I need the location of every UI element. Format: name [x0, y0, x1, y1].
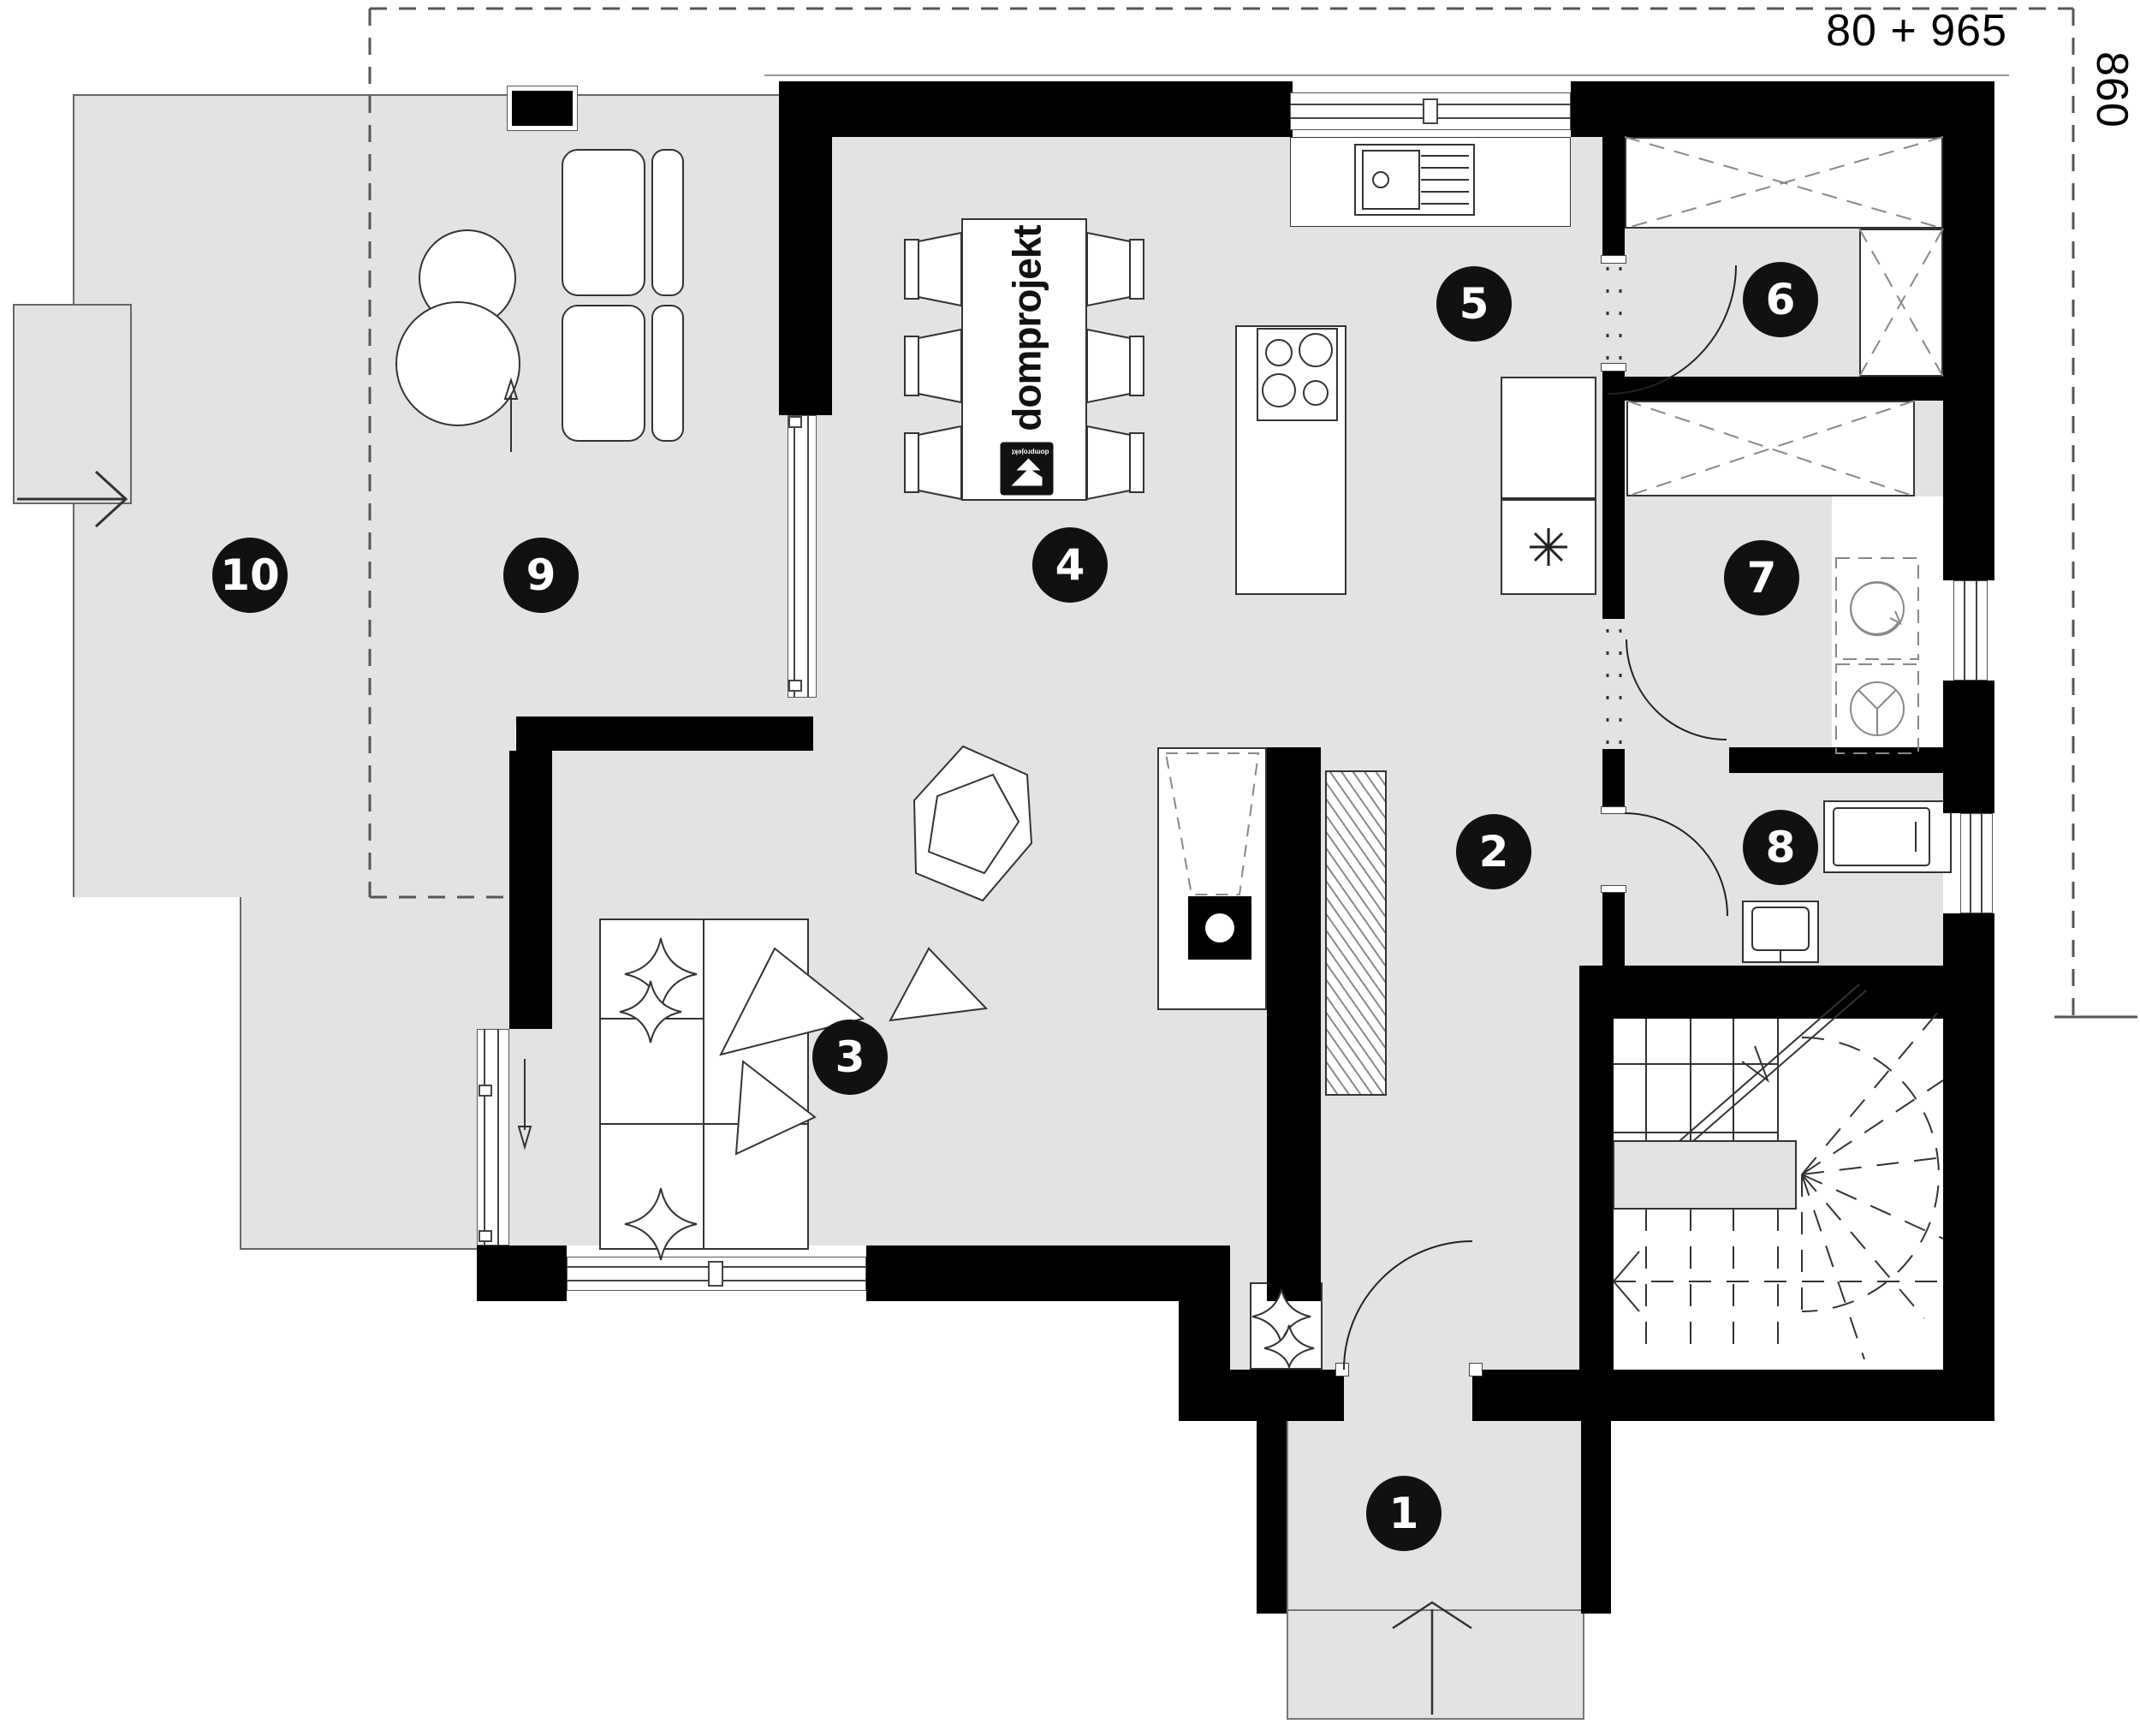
room-badge-2: 2 [1456, 814, 1531, 889]
porch-step-marks [1393, 1602, 1471, 1715]
dimension-label-right: 860 [2086, 51, 2137, 128]
armchair-hex [914, 746, 1031, 901]
washer-icon [1836, 558, 1918, 659]
room-badge-9: 9 [503, 538, 579, 613]
dimension-label-top: 80 + 965 [1626, 5, 2007, 56]
room-badge-1: 1 [1366, 1476, 1442, 1551]
toilet-inner [1752, 907, 1809, 962]
dining-chairs [905, 233, 1144, 499]
floor-plan: domprojekt domprojekt [0, 0, 2140, 1736]
door-arc-room7 [1626, 639, 1727, 740]
entry-arrow-icon [17, 472, 126, 526]
slide-arrow-living [519, 1059, 531, 1147]
sink-icon [1363, 151, 1469, 209]
fireplace-icon [1166, 753, 1258, 942]
room-badge-10: 10 [212, 538, 288, 613]
terrace-loungers [562, 150, 683, 441]
fridge-icon [1530, 528, 1567, 566]
bathtub-inner [1834, 808, 1929, 865]
staircase [1614, 984, 1943, 1359]
room-badge-4: 4 [1032, 527, 1108, 603]
dryer-icon [1836, 664, 1918, 753]
stove-icon [1263, 334, 1332, 407]
room-badge-3: 3 [812, 1020, 888, 1095]
terrace-tables [396, 230, 520, 425]
dotted-passages [1608, 267, 1620, 745]
door-arc-entry [1344, 1241, 1472, 1370]
door-arc-room8 [1625, 813, 1727, 916]
room-badge-6: 6 [1743, 262, 1818, 337]
room-badge-5: 5 [1436, 266, 1512, 342]
closet-pillows [1252, 1289, 1314, 1367]
room-badge-7: 7 [1724, 540, 1799, 615]
room-badge-8: 8 [1743, 810, 1818, 885]
door-arc-room6 [1608, 265, 1736, 394]
